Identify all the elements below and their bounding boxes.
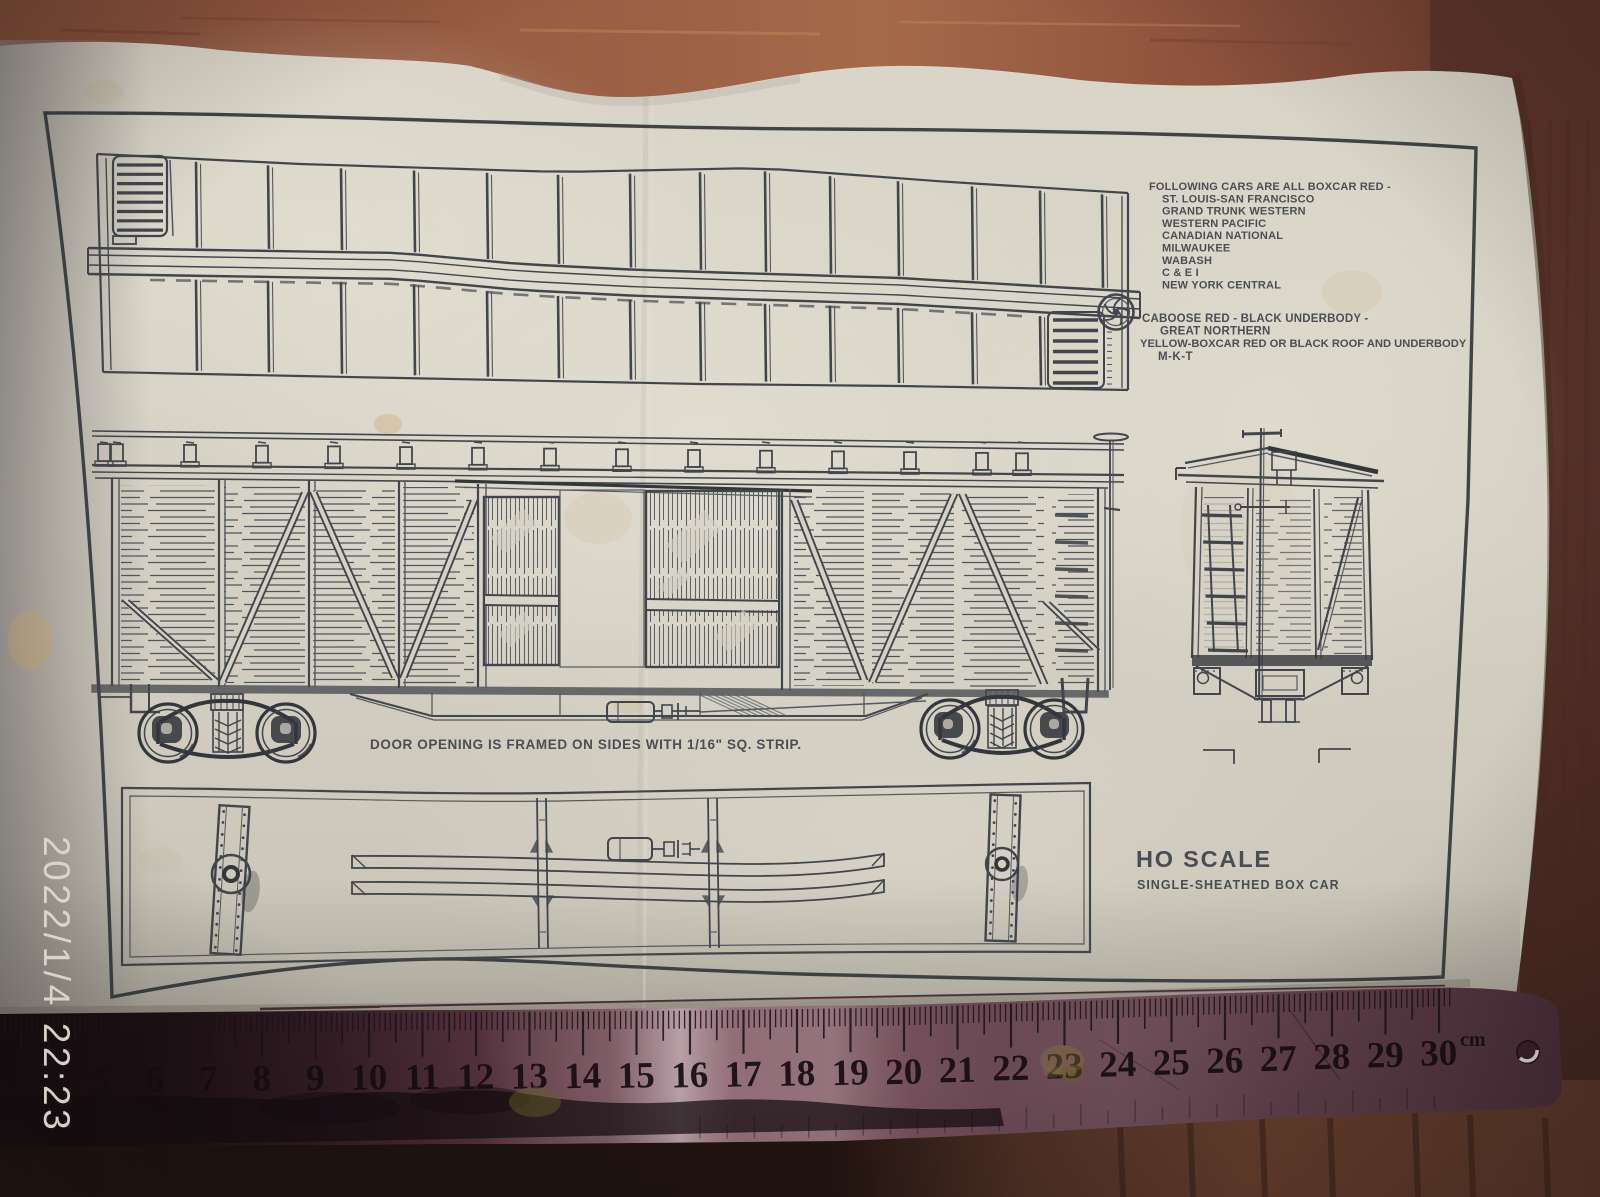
svg-text:2022/1/4 22:23: 2022/1/4 22:23	[36, 836, 77, 1133]
